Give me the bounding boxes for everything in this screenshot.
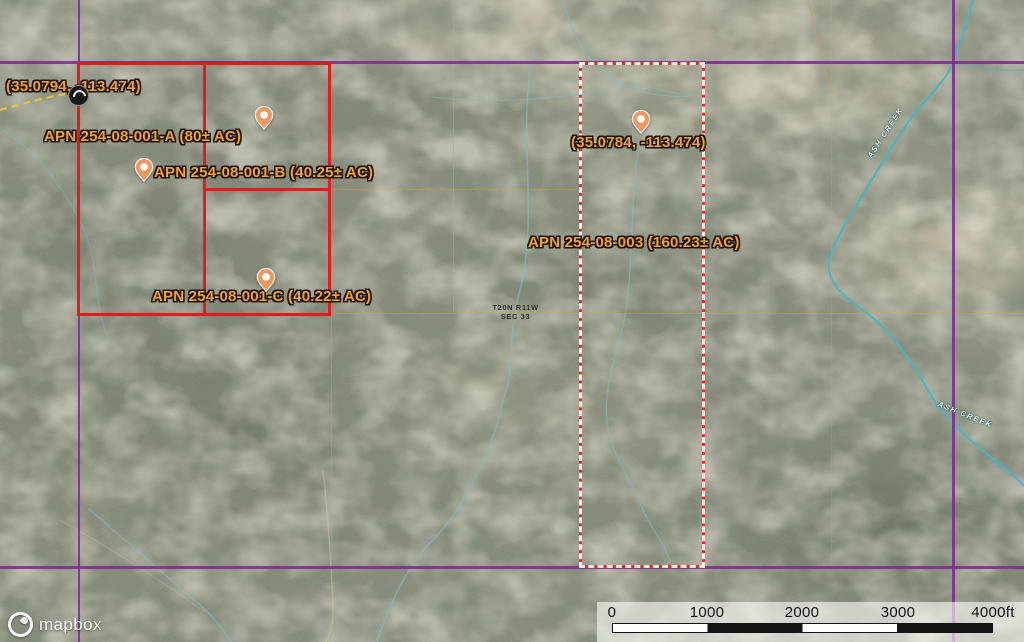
section-line-vertical xyxy=(831,0,832,567)
ash-creek-path xyxy=(829,0,1024,486)
plss-section-number: SEC 33 xyxy=(468,312,563,321)
parcel-label-a: APN 254-08-001-A (80± AC) xyxy=(44,128,241,145)
map-pin[interactable] xyxy=(256,267,276,293)
map-pin[interactable] xyxy=(631,109,651,135)
map-pin[interactable] xyxy=(254,105,274,131)
mapbox-attribution[interactable]: mapbox xyxy=(8,612,102,637)
scale-tick: 4000ft xyxy=(971,604,1015,621)
scale-tick: 3000 xyxy=(881,604,916,621)
map-canvas[interactable]: T20N R11W SEC 33 ASH CREEK ASH CREEK (35… xyxy=(0,0,1024,642)
parcel-label-003: APN 254-08-003 (160.23± AC) xyxy=(528,234,740,251)
township-line-horizontal-bottom xyxy=(0,566,1024,569)
township-line-vertical-right xyxy=(952,0,955,642)
parcel-label-b: APN 254-08-001-B (40.25± AC) xyxy=(154,164,373,181)
parcel-divider-horizontal xyxy=(206,188,331,191)
wash xyxy=(88,508,231,642)
wash xyxy=(377,45,535,642)
scale-tick: 0 xyxy=(608,604,617,621)
scale-tick: 2000 xyxy=(785,604,820,621)
section-line-vertical xyxy=(453,0,454,313)
section-line-vertical xyxy=(331,316,332,567)
scale-tick: 1000 xyxy=(690,604,725,621)
section-line-horizontal xyxy=(331,189,576,190)
mapbox-logo-text: mapbox xyxy=(39,615,102,635)
mapbox-logo-icon xyxy=(8,612,33,637)
corner-marker-icon[interactable] xyxy=(68,85,89,106)
scale-bar xyxy=(612,623,993,633)
coordinate-label: (35.0784, -113.474) xyxy=(571,134,706,151)
plss-township-range: T20N R11W xyxy=(468,303,563,312)
plss-section-label: T20N R11W SEC 33 xyxy=(468,303,563,321)
dirt-track xyxy=(808,0,833,95)
map-pin[interactable] xyxy=(134,157,154,183)
